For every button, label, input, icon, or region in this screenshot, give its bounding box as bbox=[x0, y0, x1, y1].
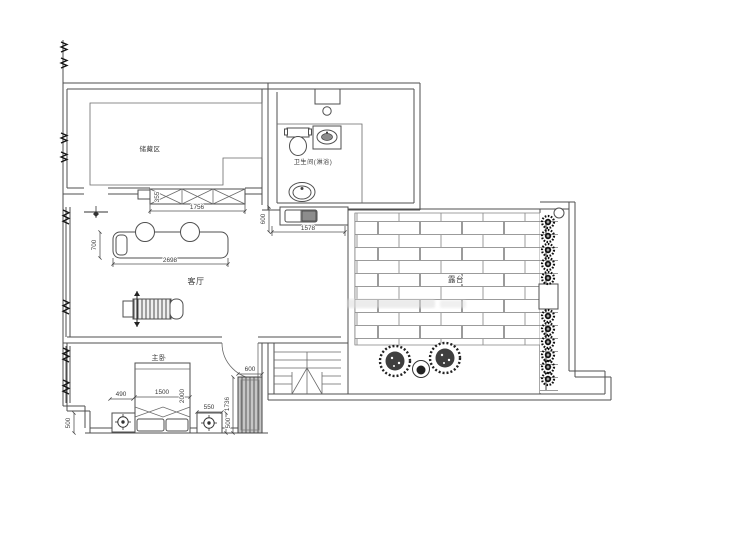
dim-counter-length: 1578 bbox=[301, 225, 316, 232]
dim-bed-width: 1500 bbox=[155, 389, 170, 396]
round-shrub-small bbox=[413, 361, 430, 378]
pot-circle-icon bbox=[554, 208, 564, 218]
dim-left-nightstand-width: 490 bbox=[116, 391, 127, 398]
window-symbol-icon bbox=[63, 380, 69, 394]
wardrobe bbox=[238, 377, 262, 433]
entry-threshold-marker bbox=[84, 206, 108, 218]
washbasin-counter bbox=[313, 126, 341, 149]
flue-niche bbox=[315, 89, 340, 104]
planter-gap-box bbox=[539, 284, 558, 309]
break-symbol-icon bbox=[61, 58, 67, 68]
room-label-bathroom: 卫生间(淋浴) bbox=[294, 158, 333, 166]
room-label-storage: 储藏区 bbox=[140, 144, 161, 153]
dim-wardrobe-width: 600 bbox=[245, 366, 256, 373]
floor-plan-canvas: 1756 355 700 2698 600 1578 490 1500 2000… bbox=[0, 0, 740, 555]
drain-icon bbox=[323, 107, 331, 115]
dim-left-nightstand-depth: 500 bbox=[65, 417, 72, 428]
dim-cabinet-depth: 355 bbox=[154, 191, 161, 202]
staircase bbox=[274, 352, 341, 394]
dim-right-nightstand-depth: 500 bbox=[225, 417, 232, 428]
break-symbol-icon bbox=[61, 152, 67, 162]
nightstand-left bbox=[112, 413, 135, 432]
watermark bbox=[347, 299, 466, 308]
dim-right-nightstand-width: 550 bbox=[204, 404, 215, 411]
room-label-living: 客厅 bbox=[188, 276, 205, 286]
dim-sofa-depth: 700 bbox=[91, 239, 98, 250]
round-shrub-large bbox=[430, 343, 460, 373]
window-symbol-icon bbox=[63, 210, 69, 224]
pillow bbox=[166, 419, 188, 431]
dim-cabinet-width: 1756 bbox=[190, 204, 205, 211]
stool-icon bbox=[136, 223, 155, 242]
dim-wardrobe-depth: 1736 bbox=[224, 396, 231, 411]
floor-plan-drawing: 1756 355 700 2698 600 1578 490 1500 2000… bbox=[0, 0, 740, 555]
window-symbol-icon bbox=[63, 348, 69, 362]
round-shrub-large bbox=[380, 346, 410, 376]
dim-counter-depth: 600 bbox=[260, 213, 267, 224]
window-symbol-icon bbox=[63, 300, 69, 314]
round-basin bbox=[289, 183, 315, 202]
sofa-table bbox=[113, 223, 228, 259]
toilet bbox=[285, 128, 312, 156]
dim-sofa-length: 2698 bbox=[163, 257, 178, 264]
break-symbol-icon bbox=[61, 133, 67, 143]
cooktop bbox=[302, 211, 316, 221]
dim-bed-length: 2000 bbox=[179, 388, 186, 403]
break-symbol-icon bbox=[61, 42, 67, 52]
storage-room-outline bbox=[90, 103, 262, 185]
room-label-bedroom: 主卧 bbox=[152, 353, 167, 362]
stool-icon bbox=[181, 223, 200, 242]
window-break-symbols bbox=[61, 42, 69, 394]
room-label-terrace: 露台 bbox=[448, 274, 464, 284]
pillow bbox=[137, 419, 164, 431]
treadmill bbox=[123, 291, 183, 327]
nightstand-right bbox=[197, 413, 222, 433]
kitchen-counter bbox=[280, 207, 348, 225]
